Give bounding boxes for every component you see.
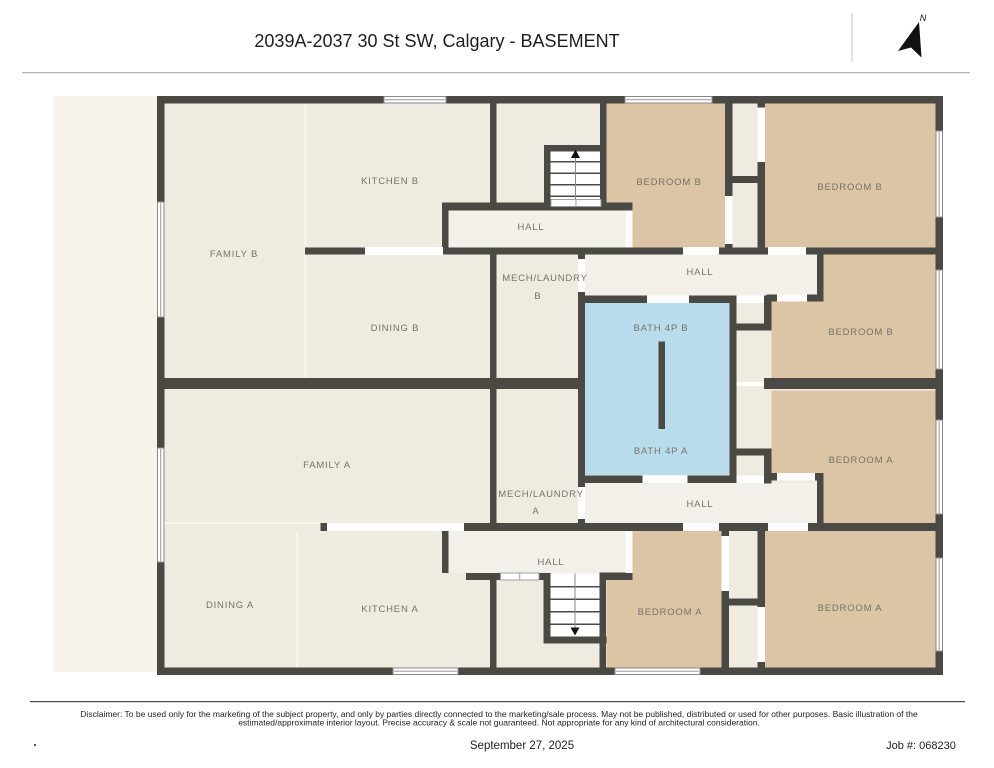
svg-text:HALL: HALL [518, 222, 545, 233]
svg-text:N: N [920, 13, 927, 23]
svg-text:A: A [532, 506, 539, 517]
svg-text:B: B [534, 291, 541, 302]
svg-text:KITCHEN B: KITCHEN B [361, 176, 419, 187]
svg-text:HALL: HALL [687, 267, 714, 278]
svg-text:HALL: HALL [538, 557, 565, 568]
svg-text:KITCHEN A: KITCHEN A [361, 604, 418, 615]
svg-text:BEDROOM B: BEDROOM B [828, 327, 893, 338]
svg-text:BATH 4P B: BATH 4P B [634, 323, 689, 334]
svg-text:BEDROOM B: BEDROOM B [817, 182, 882, 193]
svg-text:estimated/approximate interior: estimated/approximate interior layout. P… [238, 718, 760, 728]
svg-text:DINING B: DINING B [371, 323, 420, 334]
svg-text:BEDROOM A: BEDROOM A [638, 607, 703, 618]
svg-text:BEDROOM A: BEDROOM A [829, 455, 894, 466]
svg-text:MECH/LAUNDRY: MECH/LAUNDRY [498, 489, 583, 500]
svg-text:2039A-2037 30 St SW, Calgary -: 2039A-2037 30 St SW, Calgary - BASEMENT [254, 31, 619, 51]
svg-text:HALL: HALL [687, 499, 714, 510]
svg-text:DINING A: DINING A [206, 600, 254, 611]
svg-text:FAMILY A: FAMILY A [303, 460, 351, 471]
svg-text:Job #: 068230: Job #: 068230 [886, 740, 956, 752]
svg-text:FAMILY B: FAMILY B [210, 249, 258, 260]
svg-text:BATH 4P A: BATH 4P A [634, 446, 688, 457]
svg-text:September 27, 2025: September 27, 2025 [470, 740, 574, 752]
svg-text:MECH/LAUNDRY: MECH/LAUNDRY [502, 273, 587, 284]
svg-text:BEDROOM B: BEDROOM B [636, 177, 701, 188]
svg-text:BEDROOM A: BEDROOM A [818, 603, 883, 614]
